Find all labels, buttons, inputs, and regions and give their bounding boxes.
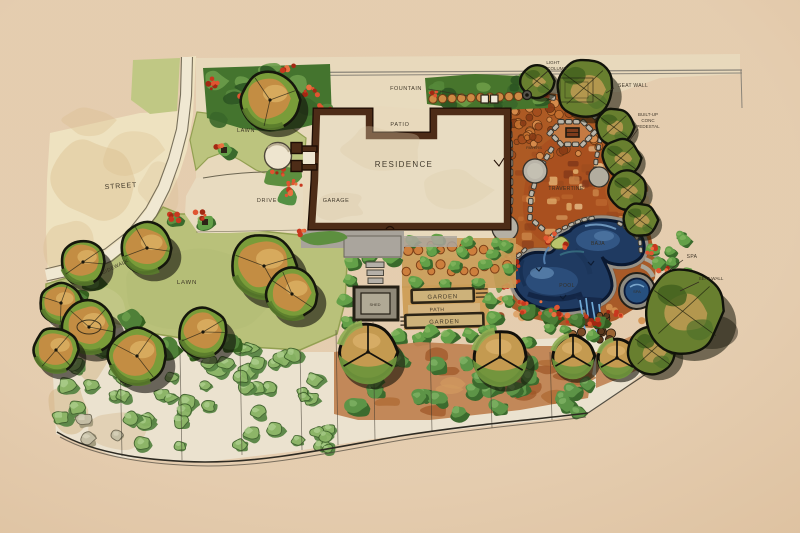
- svg-text:SHED: SHED: [369, 302, 380, 307]
- svg-text:TRAVERTINE: TRAVERTINE: [548, 186, 583, 192]
- svg-text:LAWN: LAWN: [237, 128, 255, 134]
- svg-text:BUILT-UP: BUILT-UP: [638, 112, 658, 117]
- svg-text:PATH: PATH: [430, 307, 445, 313]
- svg-text:FOUNTAIN: FOUNTAIN: [390, 86, 422, 92]
- svg-text:POOL: POOL: [559, 283, 575, 289]
- svg-text:PATIO: PATIO: [390, 122, 409, 128]
- svg-text:DRIVE: DRIVE: [257, 198, 277, 204]
- svg-text:LIGHT: LIGHT: [546, 60, 560, 65]
- svg-text:COLUMN: COLUMN: [547, 66, 567, 71]
- svg-text:PEDESTAL: PEDESTAL: [636, 124, 660, 129]
- svg-text:GARAGE: GARAGE: [323, 198, 350, 204]
- svg-text:SPA: SPA: [687, 254, 698, 260]
- svg-text:GARDEN: GARDEN: [429, 319, 460, 326]
- svg-text:SEAT WALL: SEAT WALL: [699, 276, 724, 281]
- svg-text:GARDEN: GARDEN: [427, 294, 458, 301]
- svg-text:PAVERS: PAVERS: [526, 145, 542, 150]
- svg-text:RESIDENCE: RESIDENCE: [375, 160, 433, 169]
- svg-text:SPA: SPA: [633, 289, 641, 294]
- svg-text:CONC: CONC: [641, 118, 655, 123]
- svg-text:LAWN: LAWN: [177, 280, 197, 286]
- svg-text:BAJA: BAJA: [591, 241, 605, 247]
- svg-text:SEAT WALL: SEAT WALL: [618, 83, 648, 89]
